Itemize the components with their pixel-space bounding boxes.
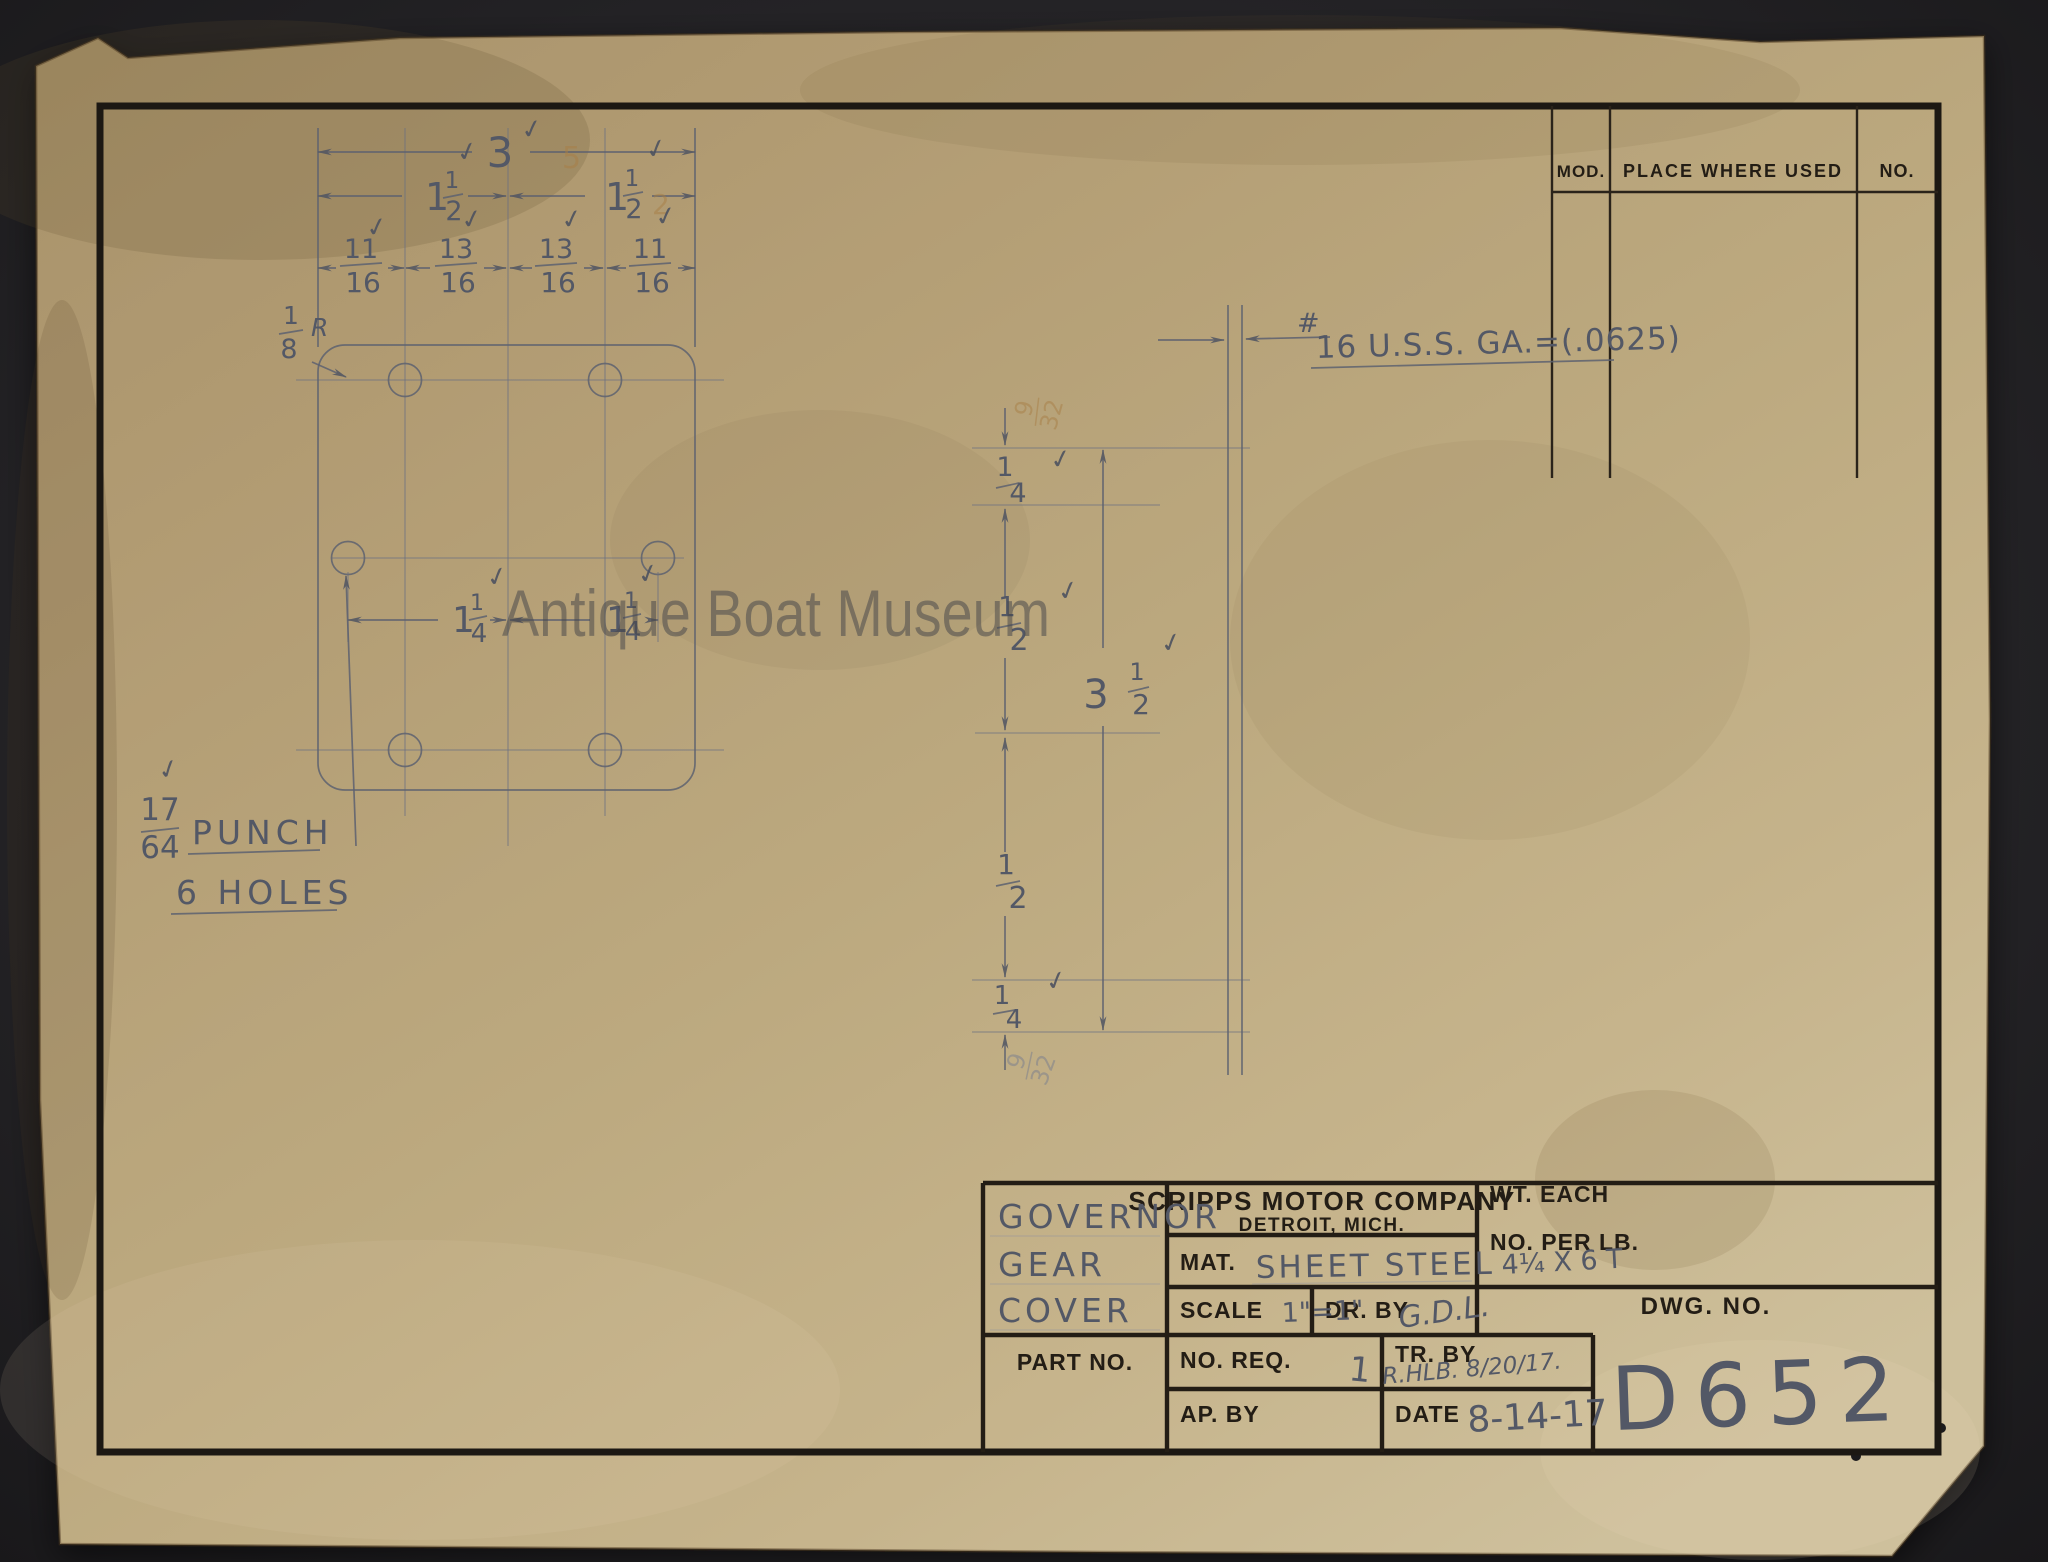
paper-sheet xyxy=(0,15,1990,1560)
svg-text:4: 4 xyxy=(1009,478,1026,509)
place-where-used-header: PLACE WHERE USED xyxy=(1623,161,1843,181)
museum-watermark: Antique Boat Museum xyxy=(502,576,1050,650)
svg-text:R: R xyxy=(311,313,328,342)
scan-of-engineering-drawing: MOD. PLACE WHERE USED NO. SCRIPPS MOTOR … xyxy=(0,0,2048,1562)
svg-text:3: 3 xyxy=(487,128,514,177)
svg-text:2: 2 xyxy=(1132,688,1150,721)
svg-text:1: 1 xyxy=(997,848,1015,881)
svg-text:11: 11 xyxy=(633,234,667,265)
svg-text:1: 1 xyxy=(470,591,484,616)
svg-text:8: 8 xyxy=(280,334,297,365)
weight-each-label: WT. EACH xyxy=(1490,1181,1609,1207)
no-column-header: NO. xyxy=(1879,161,1914,181)
svg-text:1: 1 xyxy=(1129,658,1144,686)
scale-label: SCALE xyxy=(1180,1297,1263,1323)
punch-note-line1: PUNCH xyxy=(192,813,334,852)
svg-text:16: 16 xyxy=(440,266,476,299)
blank-size-value: 4¼ X 6 T xyxy=(1501,1244,1624,1281)
drawing-scene: MOD. PLACE WHERE USED NO. SCRIPPS MOTOR … xyxy=(0,0,2048,1562)
svg-text:64: 64 xyxy=(140,830,179,866)
number-required-value: 1 xyxy=(1347,1349,1373,1391)
svg-text:16: 16 xyxy=(540,266,576,299)
scale-value: 1"=1" xyxy=(1281,1295,1364,1329)
svg-text:2: 2 xyxy=(625,194,642,225)
svg-text:1: 1 xyxy=(625,166,640,192)
svg-text:2: 2 xyxy=(1008,881,1027,916)
part-name-line3: COVER xyxy=(998,1291,1133,1330)
svg-text:16: 16 xyxy=(634,266,670,299)
svg-text:13: 13 xyxy=(539,234,573,265)
part-name-line2: GEAR xyxy=(998,1245,1106,1284)
svg-text:3: 3 xyxy=(1083,672,1108,718)
material-value: SHEET STEEL xyxy=(1256,1246,1496,1286)
svg-text:1: 1 xyxy=(445,168,460,194)
part-no-label: PART NO. xyxy=(1017,1349,1133,1375)
svg-text:16: 16 xyxy=(345,266,381,299)
svg-text:1: 1 xyxy=(283,301,299,330)
svg-text:13: 13 xyxy=(439,234,473,265)
svg-text:17: 17 xyxy=(140,792,179,828)
date-value: 8-14-17 xyxy=(1466,1393,1608,1441)
svg-text:4: 4 xyxy=(1006,1005,1023,1035)
drawing-number-value: D652 xyxy=(1609,1338,1912,1451)
date-label: DATE xyxy=(1395,1401,1460,1427)
mod-column-header: MOD. xyxy=(1557,162,1605,181)
erased-mark: 5 xyxy=(562,141,581,176)
company-city: DETROIT, MICH. xyxy=(1239,1215,1406,1236)
material-label: MAT. xyxy=(1180,1249,1236,1275)
number-required-label: NO. REQ. xyxy=(1180,1347,1292,1373)
part-name-line1: GOVERNOR xyxy=(998,1197,1221,1236)
approved-by-label: AP. BY xyxy=(1180,1401,1260,1427)
drawing-number-label: DWG. NO. xyxy=(1641,1293,1772,1320)
svg-text:4: 4 xyxy=(471,619,488,649)
punch-note-line2: 6 HOLES xyxy=(176,873,353,912)
